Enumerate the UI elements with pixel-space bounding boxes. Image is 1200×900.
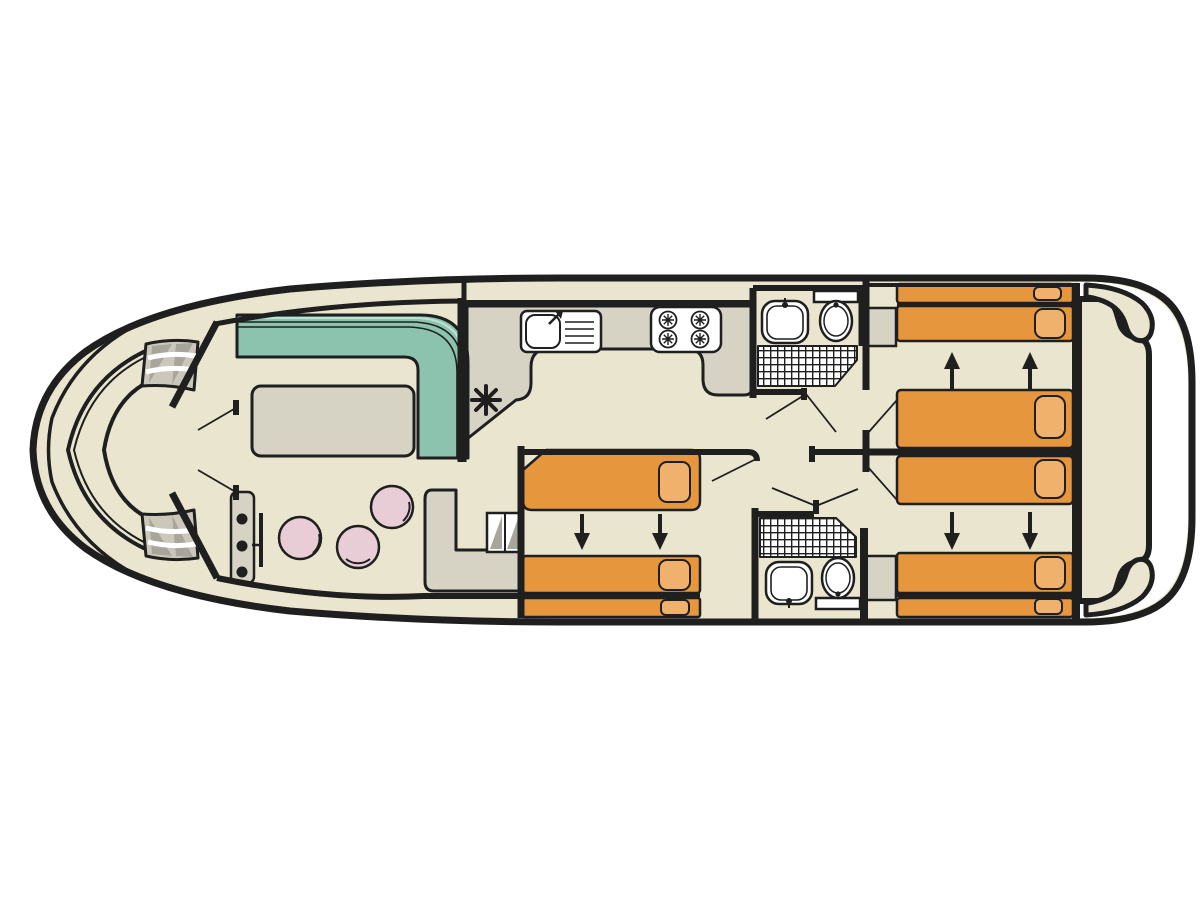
pillow xyxy=(1035,396,1065,438)
pillow xyxy=(1035,309,1065,338)
bow-step-upper xyxy=(142,340,198,390)
pillow xyxy=(1035,460,1065,498)
console-dot xyxy=(237,567,248,578)
wardrobe xyxy=(866,556,896,600)
boat-floorplan-canvas xyxy=(0,0,1200,900)
bow-step-lower xyxy=(142,510,198,560)
stern-deck-floor xyxy=(1079,299,1149,601)
boat-floorplan xyxy=(0,0,1200,900)
shower-tray-icon xyxy=(760,518,856,557)
toilet-flush-dot xyxy=(833,302,838,307)
sink-bowl xyxy=(526,315,560,348)
pillow xyxy=(659,462,690,502)
heater-asterisk-icon xyxy=(472,386,500,414)
pillow xyxy=(1035,599,1062,614)
console-dot xyxy=(237,514,248,525)
hob-icon xyxy=(651,307,721,352)
stern-deck xyxy=(1079,285,1152,615)
swivel-seat xyxy=(337,526,379,568)
swivel-seat xyxy=(371,486,413,528)
pillow xyxy=(1034,287,1061,300)
toilet-flush-dot xyxy=(835,591,840,596)
toilet-cistern xyxy=(816,598,860,609)
wardrobe xyxy=(866,308,896,346)
console-dot xyxy=(237,541,248,552)
pillow xyxy=(661,600,689,615)
pillow xyxy=(1035,557,1065,589)
coffee-table xyxy=(252,386,414,456)
pillow xyxy=(659,560,690,590)
washbasin-icon xyxy=(766,562,812,604)
